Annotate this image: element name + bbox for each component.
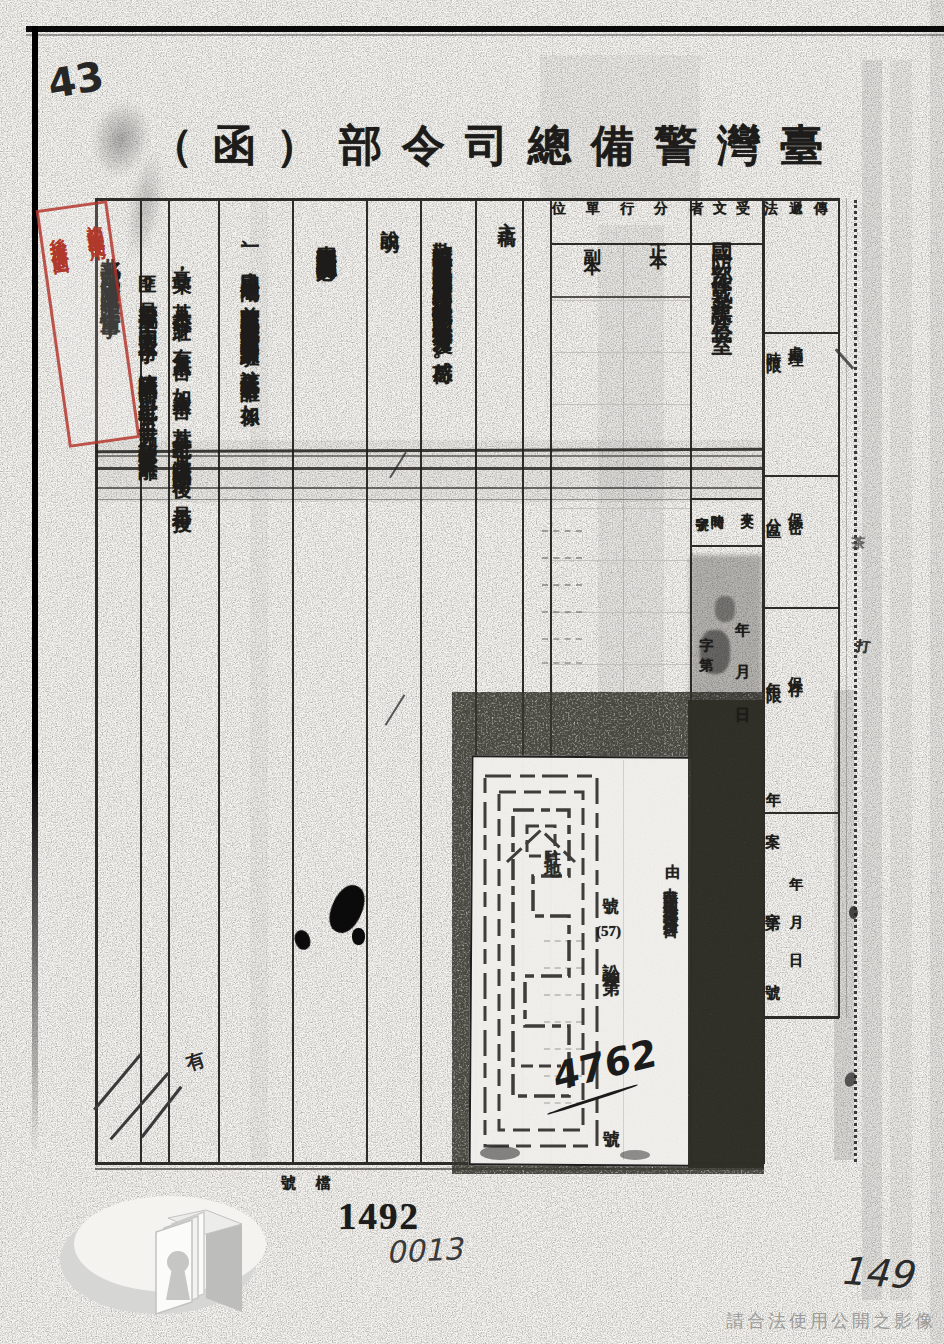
original-copy-label: 正本 [649, 230, 667, 246]
seal-pattern [477, 766, 605, 1156]
scan-line [96, 499, 762, 500]
table-border [762, 812, 839, 814]
explanation-label: 說明： [380, 214, 400, 251]
dash-row [542, 584, 582, 586]
ink-speck [620, 1150, 650, 1160]
incoming-number-fields: 字 第 [698, 625, 713, 651]
scan-line [96, 467, 762, 470]
subject-text: 敬請查明前陸軍軍官學校瀋陽第三軍官訓練班卅七年間該主任姓名等見覆，感荷。 [432, 226, 453, 374]
incoming-label: 來文 [740, 502, 754, 506]
handwritten-archive-number: 0013 [385, 1234, 463, 1268]
table-border-faint [846, 198, 847, 1018]
ledger-line [552, 664, 690, 665]
incoming-number-label: 字號 [695, 506, 709, 510]
archive-stamp-number: 1492 [338, 1198, 420, 1235]
delivery-method-label: 法遞傳 [764, 202, 839, 216]
handwritten-top-left-number: 43 [45, 55, 107, 104]
scan-streak [890, 60, 912, 1300]
processing-label-right: 處理 [787, 334, 803, 346]
dash-row [542, 611, 582, 613]
duplicate-copy-label: 副本 [583, 236, 601, 252]
margin-mark-tea: 茶 [852, 536, 865, 549]
dash-row [542, 530, 582, 532]
table-border [218, 198, 220, 1164]
margin-mark-hit: 打 [855, 639, 871, 655]
dash-row [542, 638, 582, 640]
dash-row [542, 662, 582, 664]
incoming-time-fields: 年 月 日 [734, 610, 750, 710]
document-title: （函）部令司總備警灣臺 [150, 124, 843, 167]
table-border [420, 198, 422, 1164]
drafter-label: 主稿： [497, 208, 516, 244]
table-border [762, 607, 839, 609]
processing-label-left: 時限 [765, 340, 781, 352]
scanned-document-page: （函）部令司總備警灣臺 43 複印文件使用 後按原件退回 [0, 0, 944, 1344]
stamp-date: 中華民國伍拾柒年拾月拾肆日 [662, 876, 678, 915]
recipient-value: 國防部作戰參謀次長室 [711, 226, 733, 326]
ledger-line [552, 404, 690, 405]
scan-line [96, 487, 762, 489]
station-label: 駐地 [544, 836, 561, 860]
distribution-label: 位單行分 [552, 202, 688, 216]
recipient-label: 者文受 [690, 202, 759, 216]
scan-edge-left [32, 26, 38, 1156]
ink-speck [849, 906, 858, 919]
ink-speck [480, 1146, 520, 1160]
usage-watermark: 請合法使用公開之影像 [726, 1312, 936, 1330]
table-border [168, 198, 170, 1164]
table-border [762, 1016, 839, 1019]
security-label-left: 分區 [765, 506, 781, 518]
scan-streak [930, 0, 944, 1344]
explanation-line-2: 一、民國卅七年間，前陸軍軍官學校是否在瀋陽設有第三軍官訓練班？該主任姓甚名誰？如… [240, 236, 260, 394]
table-border [292, 198, 294, 1164]
ledger-line [552, 560, 690, 561]
archive-number-label: 號檔 [281, 1176, 351, 1191]
archives-logo [56, 1190, 276, 1340]
file-char-no-label: 字第 [764, 900, 780, 908]
ledger-line [552, 300, 690, 301]
red-stamp-text-right: 複印文件使用 [83, 210, 104, 236]
security-label-right: 保密 [787, 500, 803, 512]
scan-streak [862, 60, 882, 1300]
ledger-line [552, 508, 690, 509]
ledger-line [552, 352, 690, 353]
scan-edge-top-shadow [26, 34, 944, 36]
table-border-faint [623, 760, 624, 1160]
explanation-line-1: 本部因案對於左列各點認有查明必要： [316, 230, 337, 267]
explanation-line-4: 匪？是否屬于「民主同盟」份子？瀋陽陷匪前（卅七年十月至十一月初）該聶某曾無離 [138, 260, 158, 450]
scan-edge-top [26, 26, 944, 32]
retention-label-left: 年限 [765, 670, 781, 682]
dash-row [542, 557, 582, 559]
scan-streak [834, 690, 854, 1160]
ink-speck [715, 596, 735, 622]
table-border [690, 545, 763, 547]
table-border [366, 198, 368, 1164]
ref-year: (57) [596, 924, 621, 939]
perforation-dotted-line [854, 200, 857, 1162]
retention-label-right: 保存 [787, 664, 803, 676]
handwritten-page-number: 149 [839, 1252, 914, 1295]
ref-code: 訟神字第 [602, 950, 620, 970]
file-date-fields: 年 月 日 [788, 866, 803, 954]
explanation-line-3: 聶某，其人是否少壯？有無來台？如未來台？其在卅七年十一月瀋陽陷匪前後，是否投 [172, 256, 192, 503]
ink-smear-band [688, 700, 764, 1168]
table-border [762, 475, 839, 477]
ink-blob [352, 928, 365, 945]
table-border [550, 296, 691, 298]
scan-line [96, 455, 762, 457]
red-stamp-text-left: 後按原件退回 [46, 223, 67, 249]
incoming-time-label: 時間 [710, 504, 724, 508]
